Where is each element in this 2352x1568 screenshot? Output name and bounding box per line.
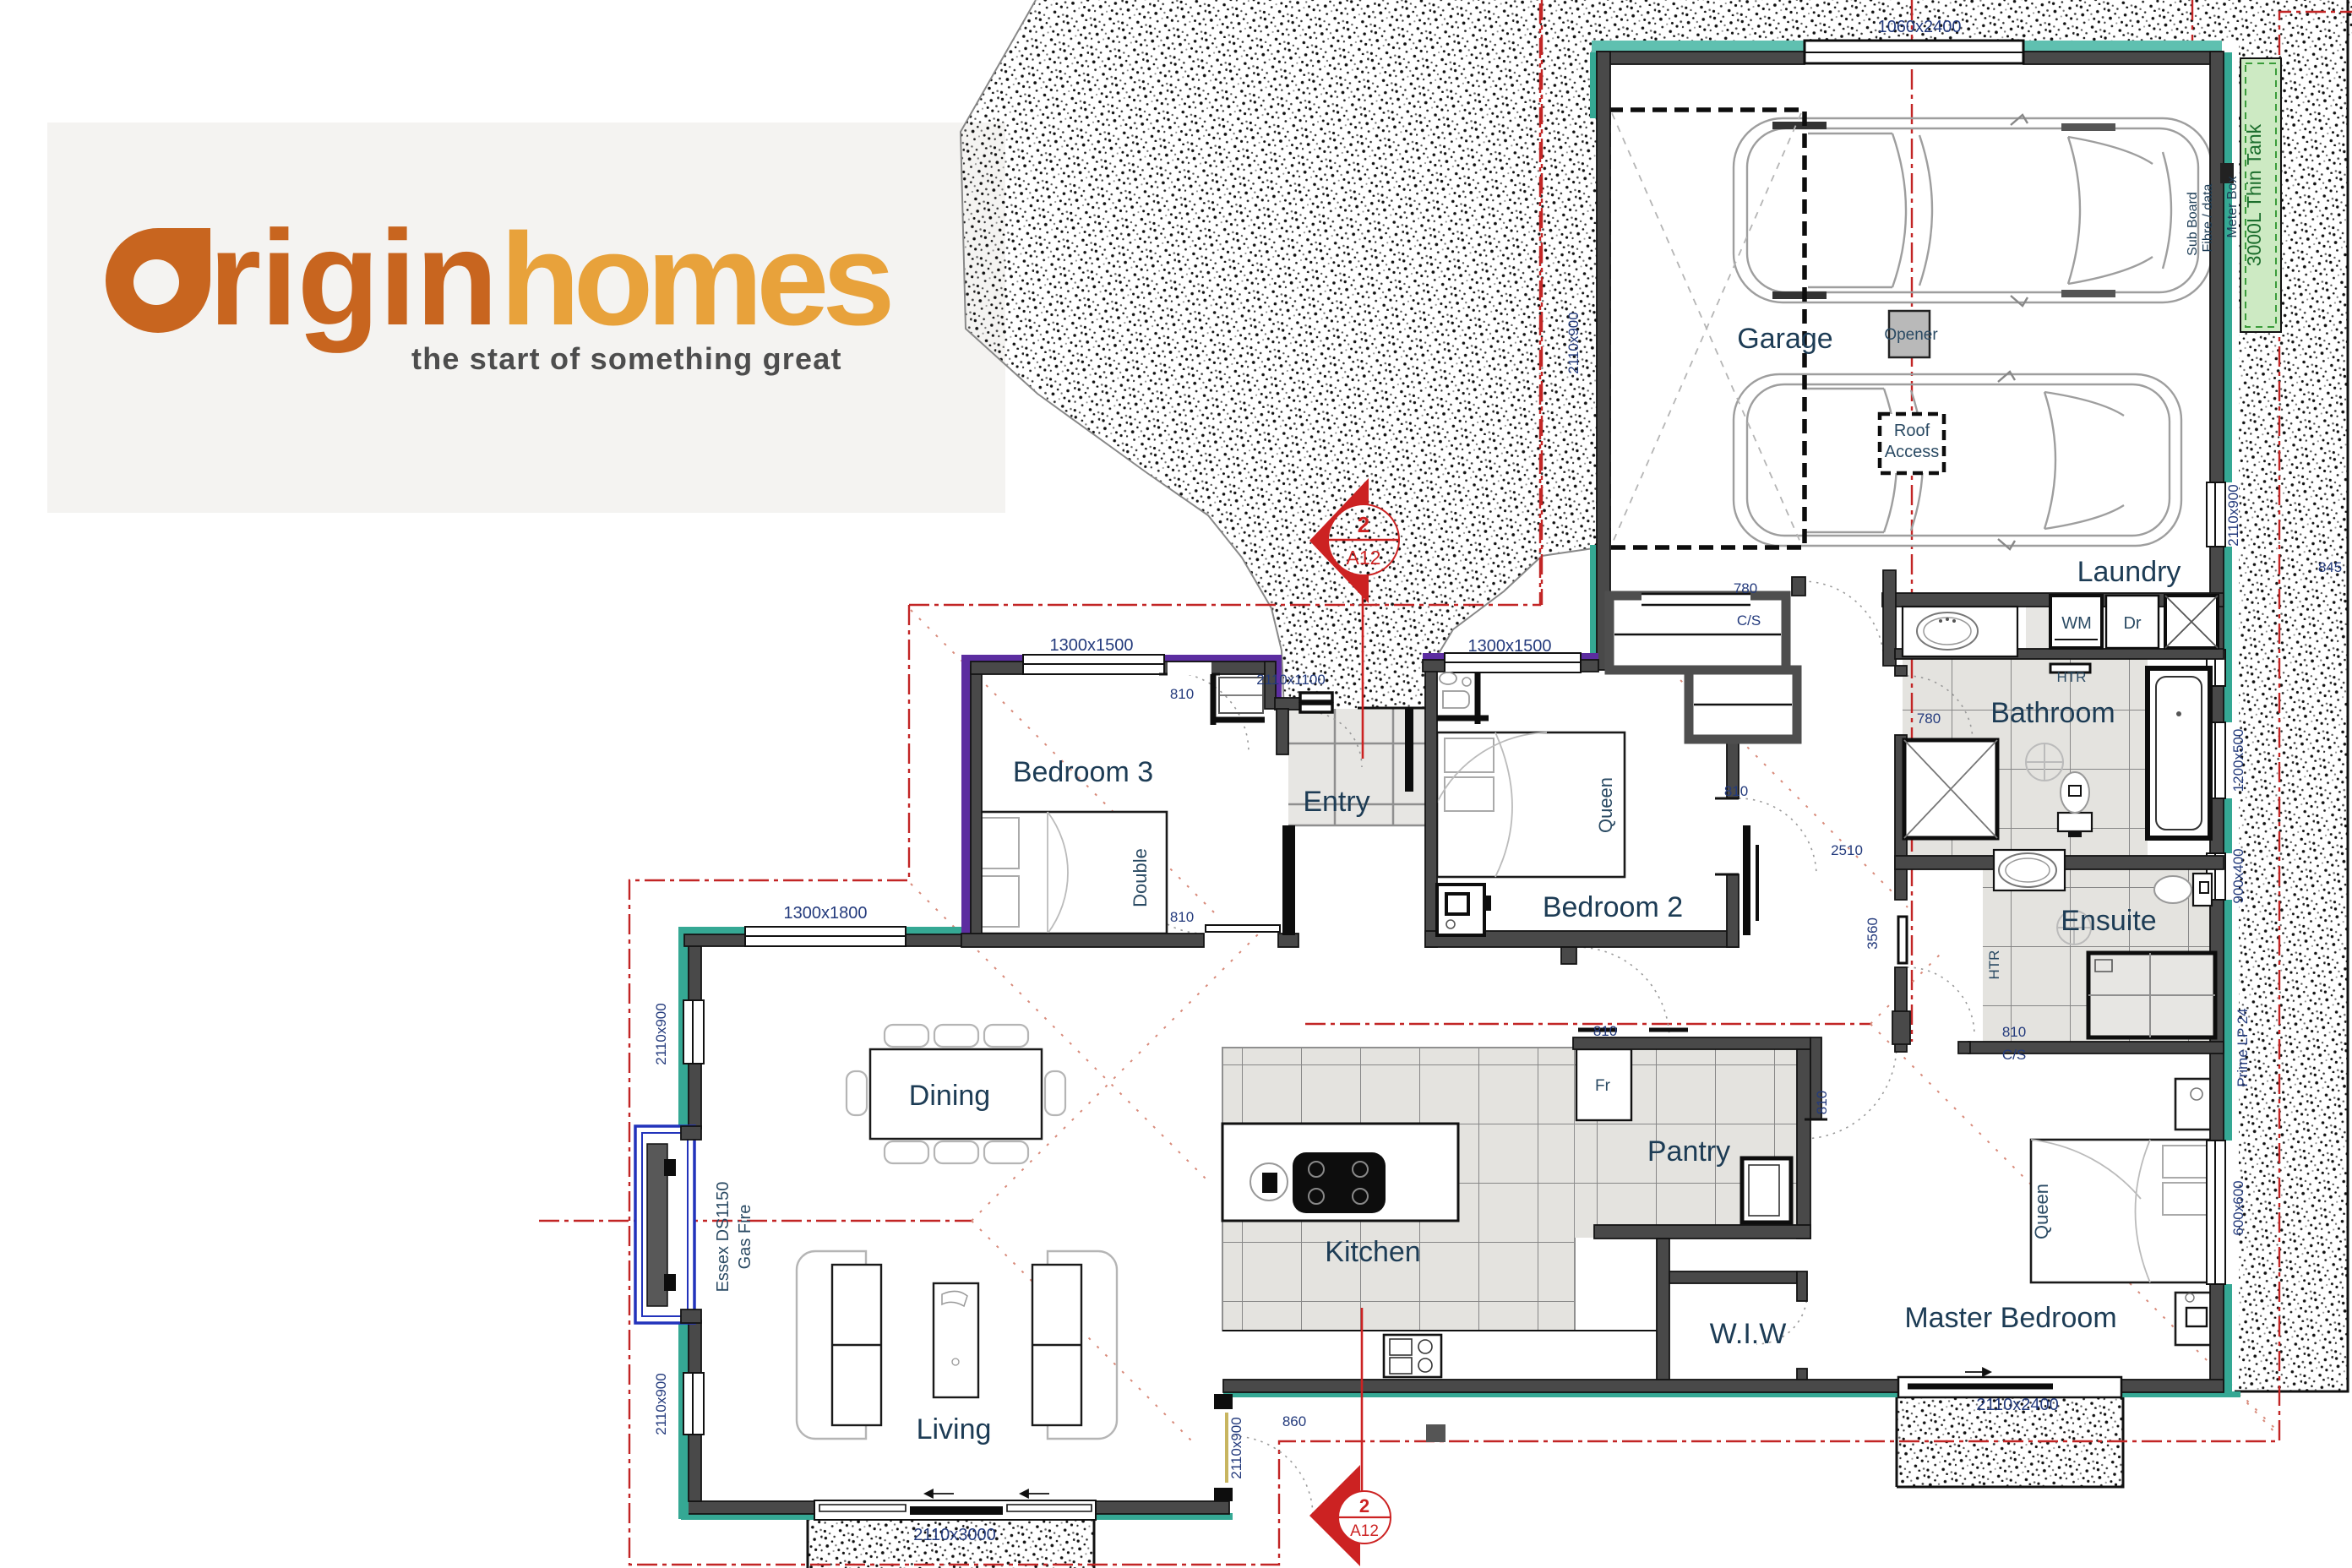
svg-text:810: 810 [1724, 783, 1748, 799]
svg-text:2110x1100: 2110x1100 [1256, 672, 1326, 688]
svg-text:the start of something great: the start of something great [411, 341, 842, 376]
svg-text:810: 810 [1170, 686, 1194, 702]
svg-text:HTR: HTR [2057, 669, 2087, 685]
svg-text:600x600: 600x600 [2230, 1180, 2246, 1235]
svg-text:Double: Double [1130, 848, 1151, 907]
svg-text:2110x900: 2110x900 [1565, 312, 1582, 373]
svg-text:Dining: Dining [909, 1080, 990, 1112]
svg-text:Bedroom 2: Bedroom 2 [1543, 891, 1683, 923]
svg-text:2: 2 [1359, 1495, 1369, 1516]
svg-text:Access: Access [1885, 443, 1939, 461]
svg-text:Prime LP 24: Prime LP 24 [2235, 1008, 2251, 1086]
svg-text:Entry: Entry [1303, 786, 1369, 818]
svg-text:Kitchen: Kitchen [1325, 1236, 1420, 1268]
svg-text:HTR: HTR [1986, 950, 2002, 980]
svg-text:1200x500: 1200x500 [2230, 729, 2246, 792]
svg-text:homes: homes [500, 206, 890, 352]
svg-text:W.I.W: W.I.W [1710, 1318, 1787, 1350]
svg-text:1060x2400: 1060x2400 [1878, 18, 1962, 36]
svg-text:WM: WM [2061, 614, 2092, 633]
svg-text:1300x1800: 1300x1800 [784, 904, 868, 923]
svg-text:Ensuite: Ensuite [2061, 905, 2156, 937]
svg-text:900x400: 900x400 [2230, 848, 2246, 903]
svg-text:2110x900: 2110x900 [2225, 484, 2241, 546]
svg-text:2110x2400: 2110x2400 [1976, 1396, 2059, 1414]
svg-text:2: 2 [1358, 512, 1369, 537]
svg-text:1300x1500: 1300x1500 [1468, 637, 1552, 656]
svg-text:Gas Fire: Gas Fire [736, 1205, 754, 1270]
svg-text:2510: 2510 [1831, 842, 1863, 858]
svg-text:1300x1500: 1300x1500 [1050, 636, 1134, 655]
svg-text:810: 810 [2002, 1024, 2026, 1040]
svg-text:A12: A12 [1350, 1522, 1379, 1540]
svg-text:Roof: Roof [1894, 422, 1930, 440]
svg-text:810: 810 [1593, 1023, 1617, 1039]
svg-text:860: 860 [1282, 1413, 1306, 1429]
svg-text:Bathroom: Bathroom [1990, 697, 2115, 729]
svg-text:Garage: Garage [1737, 323, 1832, 355]
svg-text:Fr: Fr [1595, 1077, 1611, 1095]
svg-text:Sub Board: Sub Board [2186, 192, 2200, 256]
svg-text:780: 780 [1734, 580, 1757, 596]
svg-text:780: 780 [1917, 710, 1941, 727]
svg-text:Queen: Queen [1595, 777, 1616, 833]
svg-text:3560: 3560 [1865, 917, 1881, 950]
svg-text:2110x900: 2110x900 [653, 1003, 669, 1064]
svg-text:Pantry: Pantry [1647, 1135, 1730, 1168]
svg-text:Master Bedroom: Master Bedroom [1904, 1302, 2116, 1334]
svg-text:A12: A12 [1347, 547, 1381, 569]
svg-text:Opener: Opener [1884, 326, 1938, 344]
svg-text:Fibre / data: Fibre / data [2201, 183, 2215, 252]
svg-text:Queen: Queen [2031, 1184, 2052, 1239]
svg-text:810: 810 [1170, 909, 1194, 925]
svg-text:Meter Box: Meter Box [2225, 177, 2240, 238]
svg-text:rigin: rigin [209, 202, 498, 353]
svg-text:3000L Thin Tank: 3000L Thin Tank [2243, 123, 2265, 266]
svg-text:845: 845 [2318, 559, 2342, 575]
svg-text:Essex DS1150: Essex DS1150 [714, 1182, 732, 1293]
svg-text:Dr: Dr [2123, 614, 2141, 633]
svg-text:2110x3000: 2110x3000 [913, 1526, 996, 1544]
svg-text:Bedroom 3: Bedroom 3 [1013, 756, 1153, 788]
svg-text:C/S: C/S [1737, 612, 1761, 629]
svg-text:Living: Living [917, 1413, 992, 1445]
svg-text:2110x900: 2110x900 [653, 1373, 669, 1435]
svg-text:Laundry: Laundry [2077, 556, 2181, 588]
svg-text:C/S: C/S [2002, 1047, 2026, 1063]
svg-text:2110x900: 2110x900 [1228, 1417, 1244, 1478]
svg-text:810: 810 [1814, 1091, 1830, 1114]
